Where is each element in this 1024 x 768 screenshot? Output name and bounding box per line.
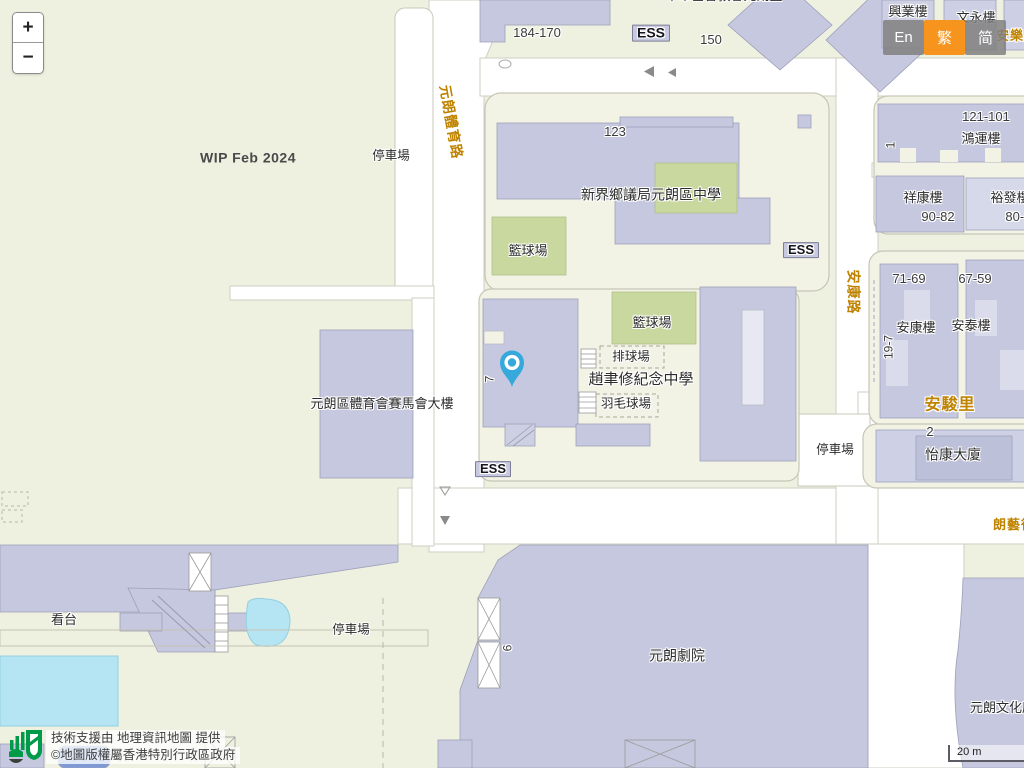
attribution-line-2: ©地圖版權屬香港特別行政區政府	[46, 747, 240, 764]
label-range-67-59: 67-59	[958, 272, 991, 286]
zoom-control: + −	[12, 12, 44, 74]
label-clsmss: 趙聿修紀念中學	[588, 372, 693, 388]
zoom-out-button[interactable]: −	[13, 43, 43, 73]
label-ess-north: ESS	[632, 25, 670, 42]
label-hing-yip-house: 興業樓	[888, 5, 927, 19]
label-cheung-hong-house: 祥康樓	[903, 191, 942, 205]
label-range-19-7: 19-7	[883, 335, 896, 359]
label-volleyball-court: 排球場	[612, 350, 650, 363]
label-car-park-east: 停車場	[816, 443, 854, 456]
label-basketball-court-south: 籃球場	[632, 316, 671, 330]
label-ess-east: ESS	[783, 242, 819, 258]
lang-simplified-button[interactable]: 简	[965, 20, 1006, 55]
label-number-123: 123	[604, 125, 626, 139]
label-wip: WIP Feb 2024	[200, 151, 296, 166]
label-car-park-south: 停車場	[332, 623, 370, 636]
label-range-90-82: 90-82	[921, 210, 954, 224]
label-range-80-62: 80-62	[1005, 210, 1024, 224]
label-ess-south: ESS	[475, 461, 511, 477]
label-number-6: 6	[502, 645, 515, 652]
location-marker[interactable]	[499, 350, 525, 388]
label-on-chun-lane: 安駿里	[924, 398, 975, 415]
label-basketball-court-north: 籃球場	[508, 244, 547, 258]
label-badminton-court: 羽毛球場	[601, 397, 651, 410]
label-hung-wan-house: 鴻運樓	[961, 132, 1000, 146]
scale-bar: 20 m	[948, 745, 1024, 762]
label-number-1: 1	[885, 142, 898, 149]
label-tai-yuk-road: 元朗體育路	[437, 84, 464, 160]
zoom-in-button[interactable]: +	[13, 13, 43, 43]
marker-dot	[508, 358, 516, 366]
label-yuen-long-theatre: 元朗劇院	[649, 649, 705, 664]
map-app: 184-170ESS150興業樓文永樓安樂路中華基督教會元朗堂123新界鄉議局元…	[0, 0, 1024, 768]
label-range-150: 150	[700, 33, 722, 47]
label-on-hong-house: 安康樓	[896, 321, 935, 335]
label-clipped-top: 中華基督教會元朗堂	[665, 0, 782, 3]
lang-traditional-button[interactable]: 繁	[924, 20, 965, 55]
language-switcher: En 繁 简	[883, 20, 1006, 55]
geoinfo-map-logo	[6, 726, 44, 764]
label-range-184-170: 184-170	[513, 26, 561, 40]
label-car-park-north: 停車場	[372, 149, 410, 162]
label-grandstand: 看台	[51, 613, 77, 627]
label-cultural-building: 元朗文化康樂大樓	[970, 701, 1024, 715]
label-on-hong-road: 安康路	[846, 270, 861, 315]
label-number-2: 2	[926, 425, 933, 439]
label-long-ngai-path: 朗藝徑	[993, 518, 1024, 532]
attribution-line-1: 技術支援由 地理資訊地圖 提供	[46, 730, 225, 747]
label-yi-hong-mansion: 怡康大廈	[925, 448, 981, 463]
label-nthyk-school: 新界鄉議局元朗區中學	[581, 188, 721, 203]
label-yu-fat-house: 裕發樓	[990, 191, 1024, 205]
lang-en-button[interactable]: En	[883, 20, 924, 55]
label-range-121-101: 121-101	[962, 110, 1010, 124]
label-number-7: 7	[484, 376, 497, 383]
label-jockey-club-building: 元朗區體育會賽馬會大樓	[310, 397, 453, 411]
label-range-71-69: 71-69	[892, 272, 925, 286]
label-on-tai-house: 安泰樓	[951, 319, 990, 333]
